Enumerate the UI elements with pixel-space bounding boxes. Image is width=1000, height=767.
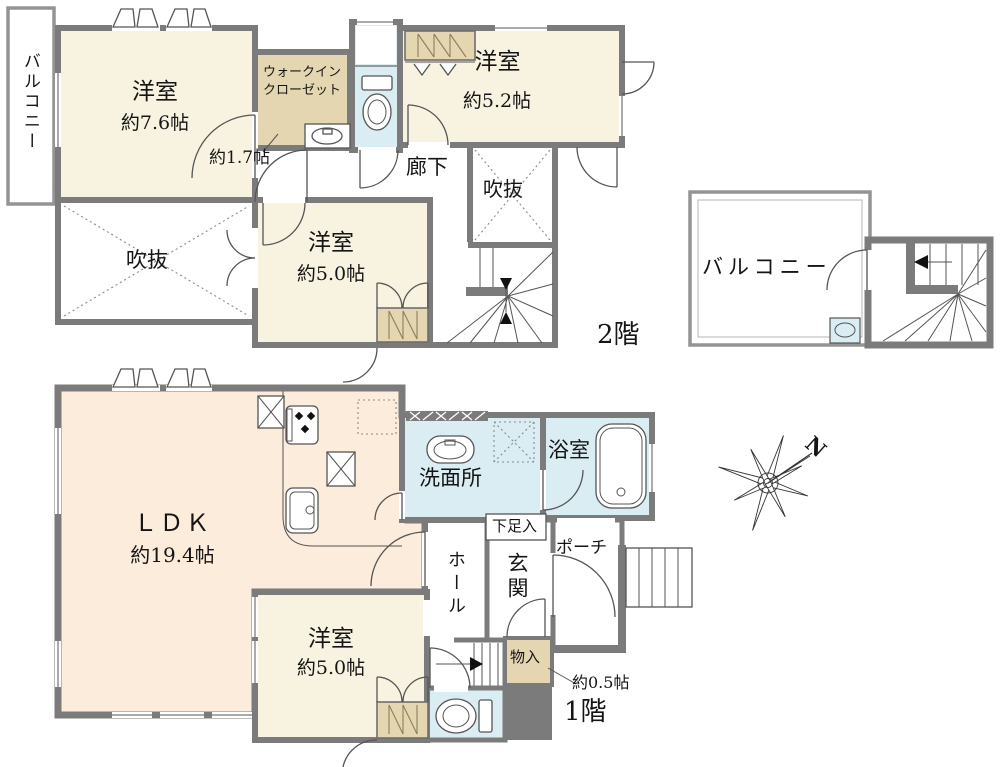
stove-icon: [286, 406, 318, 444]
label-corridor-2f: 廊下: [406, 156, 448, 178]
stairs-1f: [425, 640, 505, 690]
toilet-icon-1f: [436, 699, 492, 733]
label-floor-2: 2階: [597, 322, 640, 349]
label-storage-name: 物入: [510, 650, 540, 666]
hatched-wall: [406, 411, 488, 421]
label-void-large-2f: 吹抜: [126, 249, 168, 271]
label-storage-size: 約0.5帖: [572, 675, 629, 692]
label-room76-size: 約7.6帖: [95, 114, 215, 134]
label-wic-line2: クローゼット: [250, 84, 354, 98]
washbasin-icon: [427, 436, 474, 463]
label-room52-name: 洋室: [440, 50, 555, 74]
bathtub-icon: [596, 424, 646, 508]
slop-sink-roof: [830, 318, 860, 343]
label-entrance: 玄関: [506, 552, 528, 602]
entrance-steps: [626, 548, 692, 607]
label-room50-1f-size: 約5.0帖: [272, 659, 390, 679]
label-room76-name: 洋室: [100, 80, 210, 104]
label-ldk-name: ＬＤＫ: [125, 511, 220, 536]
label-room50-2f-size: 約5.0帖: [272, 265, 390, 285]
label-porch: ポーチ: [556, 540, 607, 558]
under-stair-wall-mass: [505, 687, 552, 740]
basin-2f: [305, 124, 350, 148]
label-washroom: 洗面所: [419, 467, 482, 489]
label-balcony-2f: バルコニー: [20, 52, 38, 152]
label-room50-1f-name: 洋室: [275, 627, 387, 651]
label-void-small-2f: 吹抜: [483, 179, 523, 200]
label-bathroom: 浴室: [548, 439, 590, 461]
label-wic-size: 約1.7帖: [209, 150, 270, 168]
label-balcony-roof: バルコニー: [702, 256, 832, 278]
label-room52-size: 約5.2帖: [437, 92, 557, 112]
label-floor-1: 1階: [564, 699, 607, 726]
label-room50-2f-name: 洋室: [275, 231, 387, 255]
label-ldk-size: 約19.4帖: [115, 545, 230, 566]
toilet-icon-2f: [362, 76, 392, 130]
label-wic-line1: ウォークイン: [250, 66, 354, 80]
label-hall: ホール: [445, 550, 464, 619]
floor-plan-page: バルコニー 洋室 約7.6帖 ウォークイン クローゼット 約1.7帖 洋室 約5…: [0, 0, 1000, 767]
label-shoebox: 下足入: [492, 519, 537, 535]
kitchen-sink-icon: [286, 488, 318, 533]
